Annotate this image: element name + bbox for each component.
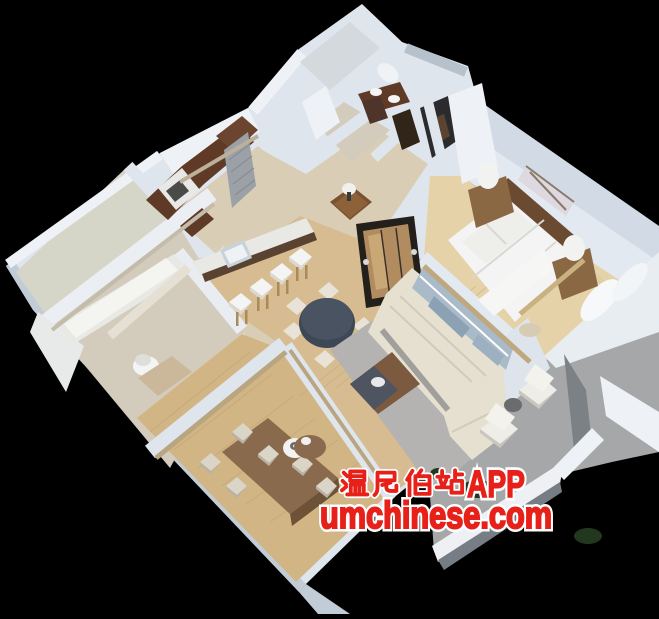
svg-text:umchinese.com: umchinese.com (320, 495, 552, 537)
